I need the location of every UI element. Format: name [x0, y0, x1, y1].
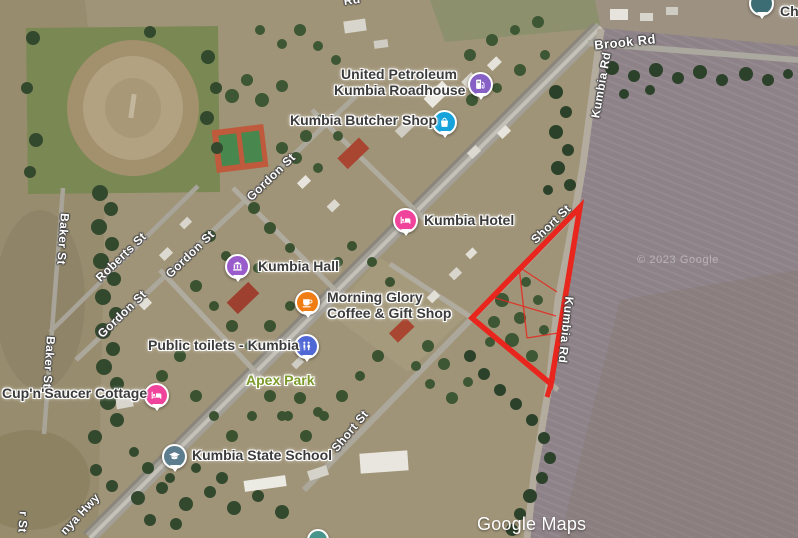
bed-icon: [150, 389, 163, 402]
street-label-gordon-st-3: Gordon St: [95, 287, 150, 340]
coffee-shop-pin[interactable]: [295, 290, 320, 315]
restroom-icon: [300, 340, 313, 353]
street-label-kumbia-rd-north: Kumbia Rd: [588, 51, 613, 119]
street-label-roberts-st: Roberts St: [93, 229, 149, 284]
clipped-pin-bottom[interactable]: [307, 529, 329, 538]
label-united-petroleum-kumbia-roadhouse[interactable]: United Petroleum Kumbia Roadhouse: [334, 66, 464, 98]
label-church-clipped[interactable]: Ch: [780, 3, 798, 19]
street-label-r-st: r St: [15, 511, 30, 534]
street-label-short-st-upper: Short St: [528, 202, 574, 247]
hall-pin[interactable]: [225, 254, 250, 279]
bed-icon: [399, 214, 412, 227]
street-label-gordon-st-2: Gordon St: [163, 227, 218, 280]
street-label-gordon-st-1: Gordon St: [244, 150, 299, 203]
shopping-bag-icon: [438, 116, 451, 129]
cottage-pin[interactable]: [144, 383, 169, 408]
graduation-cap-icon: [168, 450, 181, 463]
label-morning-glory-coffee-gift-shop[interactable]: Morning Glory Coffee & Gift Shop: [327, 289, 451, 321]
school-pin[interactable]: [162, 444, 187, 469]
tennis-courts: [212, 124, 269, 173]
map-canvas[interactable]: Brook Rd Kumbia Rd Kumbia Rd Short St Sh…: [0, 0, 798, 538]
label-kumbia-butcher-shop[interactable]: Kumbia Butcher Shop: [290, 112, 428, 128]
label-cup-n-saucer-cottage[interactable]: Cup'n'Saucer Cottage: [2, 385, 142, 401]
street-label-bunya-hwy: nya Hwy: [57, 490, 102, 537]
label-kumbia-hotel[interactable]: Kumbia Hotel: [424, 212, 514, 228]
street-label-clipped-rd: Rd: [343, 0, 362, 8]
label-kumbia-state-school[interactable]: Kumbia State School: [192, 447, 332, 463]
hotel-pin[interactable]: [393, 208, 418, 233]
google-maps-watermark[interactable]: Google Maps: [477, 514, 586, 535]
street-label-brook-rd: Brook Rd: [594, 31, 657, 52]
label-kumbia-hall[interactable]: Kumbia Hall: [258, 258, 339, 274]
street-label-baker-st-2: Baker St: [40, 336, 58, 389]
label-public-toilets-kumbia[interactable]: Public toilets - Kumbia: [148, 337, 290, 353]
fuel-station-pin[interactable]: [468, 72, 493, 97]
civic-building-icon: [231, 260, 244, 273]
church-pin-clipped[interactable]: [749, 0, 774, 16]
fuel-pump-icon: [474, 78, 487, 91]
copyright-watermark: © 2023 Google: [637, 254, 719, 266]
street-label-short-st-lower: Short St: [329, 407, 372, 454]
street-label-kumbia-rd-south: Kumbia Rd: [556, 296, 577, 364]
label-apex-park[interactable]: Apex Park: [246, 372, 314, 388]
coffee-cup-icon: [301, 296, 314, 309]
street-label-baker-st-1: Baker St: [54, 213, 72, 266]
